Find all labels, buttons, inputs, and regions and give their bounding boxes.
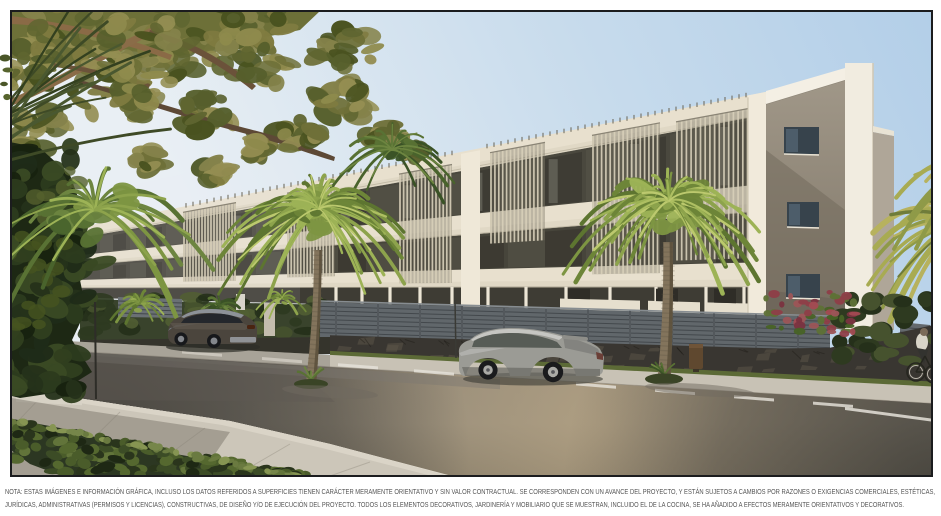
svg-text:JURÍDICAS, ADMINISTRATIVAS (PE: JURÍDICAS, ADMINISTRATIVAS (PERMISOS Y L…: [5, 500, 904, 509]
svg-text:NOTA: ESTAS IMÁGENES E INFORMA: NOTA: ESTAS IMÁGENES E INFORMACIÓN GRÁFI…: [5, 487, 935, 496]
